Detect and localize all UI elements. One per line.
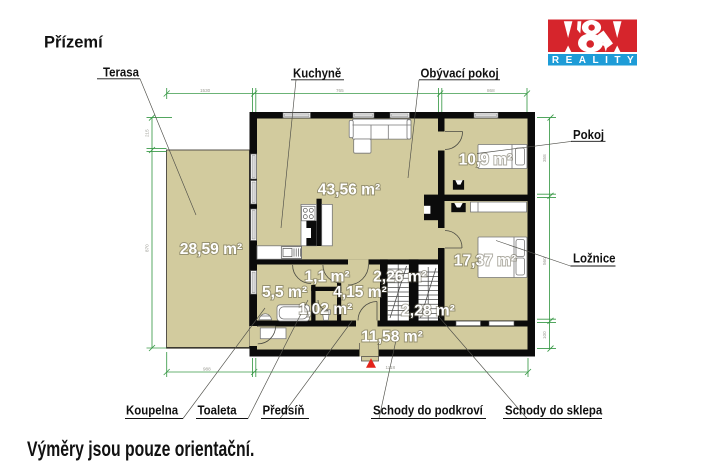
svg-text:100: 100 xyxy=(542,331,547,339)
svg-text:Přízemí: Přízemí xyxy=(44,34,104,52)
svg-text:2,28 m²: 2,28 m² xyxy=(401,303,455,320)
svg-text:868: 868 xyxy=(487,88,495,93)
svg-text:Ložnice: Ložnice xyxy=(573,251,616,266)
svg-text:765: 765 xyxy=(336,88,344,93)
svg-text:358: 358 xyxy=(542,154,547,162)
svg-text:REALITY: REALITY xyxy=(552,55,640,66)
svg-text:43,56 m²: 43,56 m² xyxy=(318,182,380,199)
svg-text:560: 560 xyxy=(542,257,547,265)
svg-text:Kuchyně: Kuchyně xyxy=(293,66,341,81)
svg-text:Terasa: Terasa xyxy=(103,65,139,80)
svg-text:2,26 m²: 2,26 m² xyxy=(373,269,427,286)
svg-text:1,02 m²: 1,02 m² xyxy=(299,301,353,318)
svg-text:1,1 m²: 1,1 m² xyxy=(304,269,349,286)
svg-text:Pokoj: Pokoj xyxy=(573,127,604,142)
svg-text:Toaleta: Toaleta xyxy=(198,403,237,418)
svg-text:Předsíň: Předsíň xyxy=(263,403,305,418)
svg-text:Schody do podkroví: Schody do podkroví xyxy=(373,403,483,418)
svg-text:5,5 m²: 5,5 m² xyxy=(262,284,307,301)
svg-text:Koupelna: Koupelna xyxy=(126,403,178,418)
svg-text:Výměry jsou pouze orientační.: Výměry jsou pouze orientační. xyxy=(27,437,254,461)
svg-text:10,9 m²: 10,9 m² xyxy=(459,152,513,169)
svg-text:Schody do sklepa: Schody do sklepa xyxy=(505,403,602,418)
svg-text:4,15 m²: 4,15 m² xyxy=(333,284,387,301)
svg-text:1530: 1530 xyxy=(200,88,211,93)
svg-text:870: 870 xyxy=(145,244,150,252)
svg-text:11,58 m²: 11,58 m² xyxy=(361,329,423,346)
svg-text:17,37 m²: 17,37 m² xyxy=(454,253,516,270)
svg-text:Obývací pokoj: Obývací pokoj xyxy=(421,66,499,81)
svg-text:28,59 m²: 28,59 m² xyxy=(180,241,242,258)
svg-text:988: 988 xyxy=(203,367,211,372)
svg-text:215: 215 xyxy=(145,129,150,137)
